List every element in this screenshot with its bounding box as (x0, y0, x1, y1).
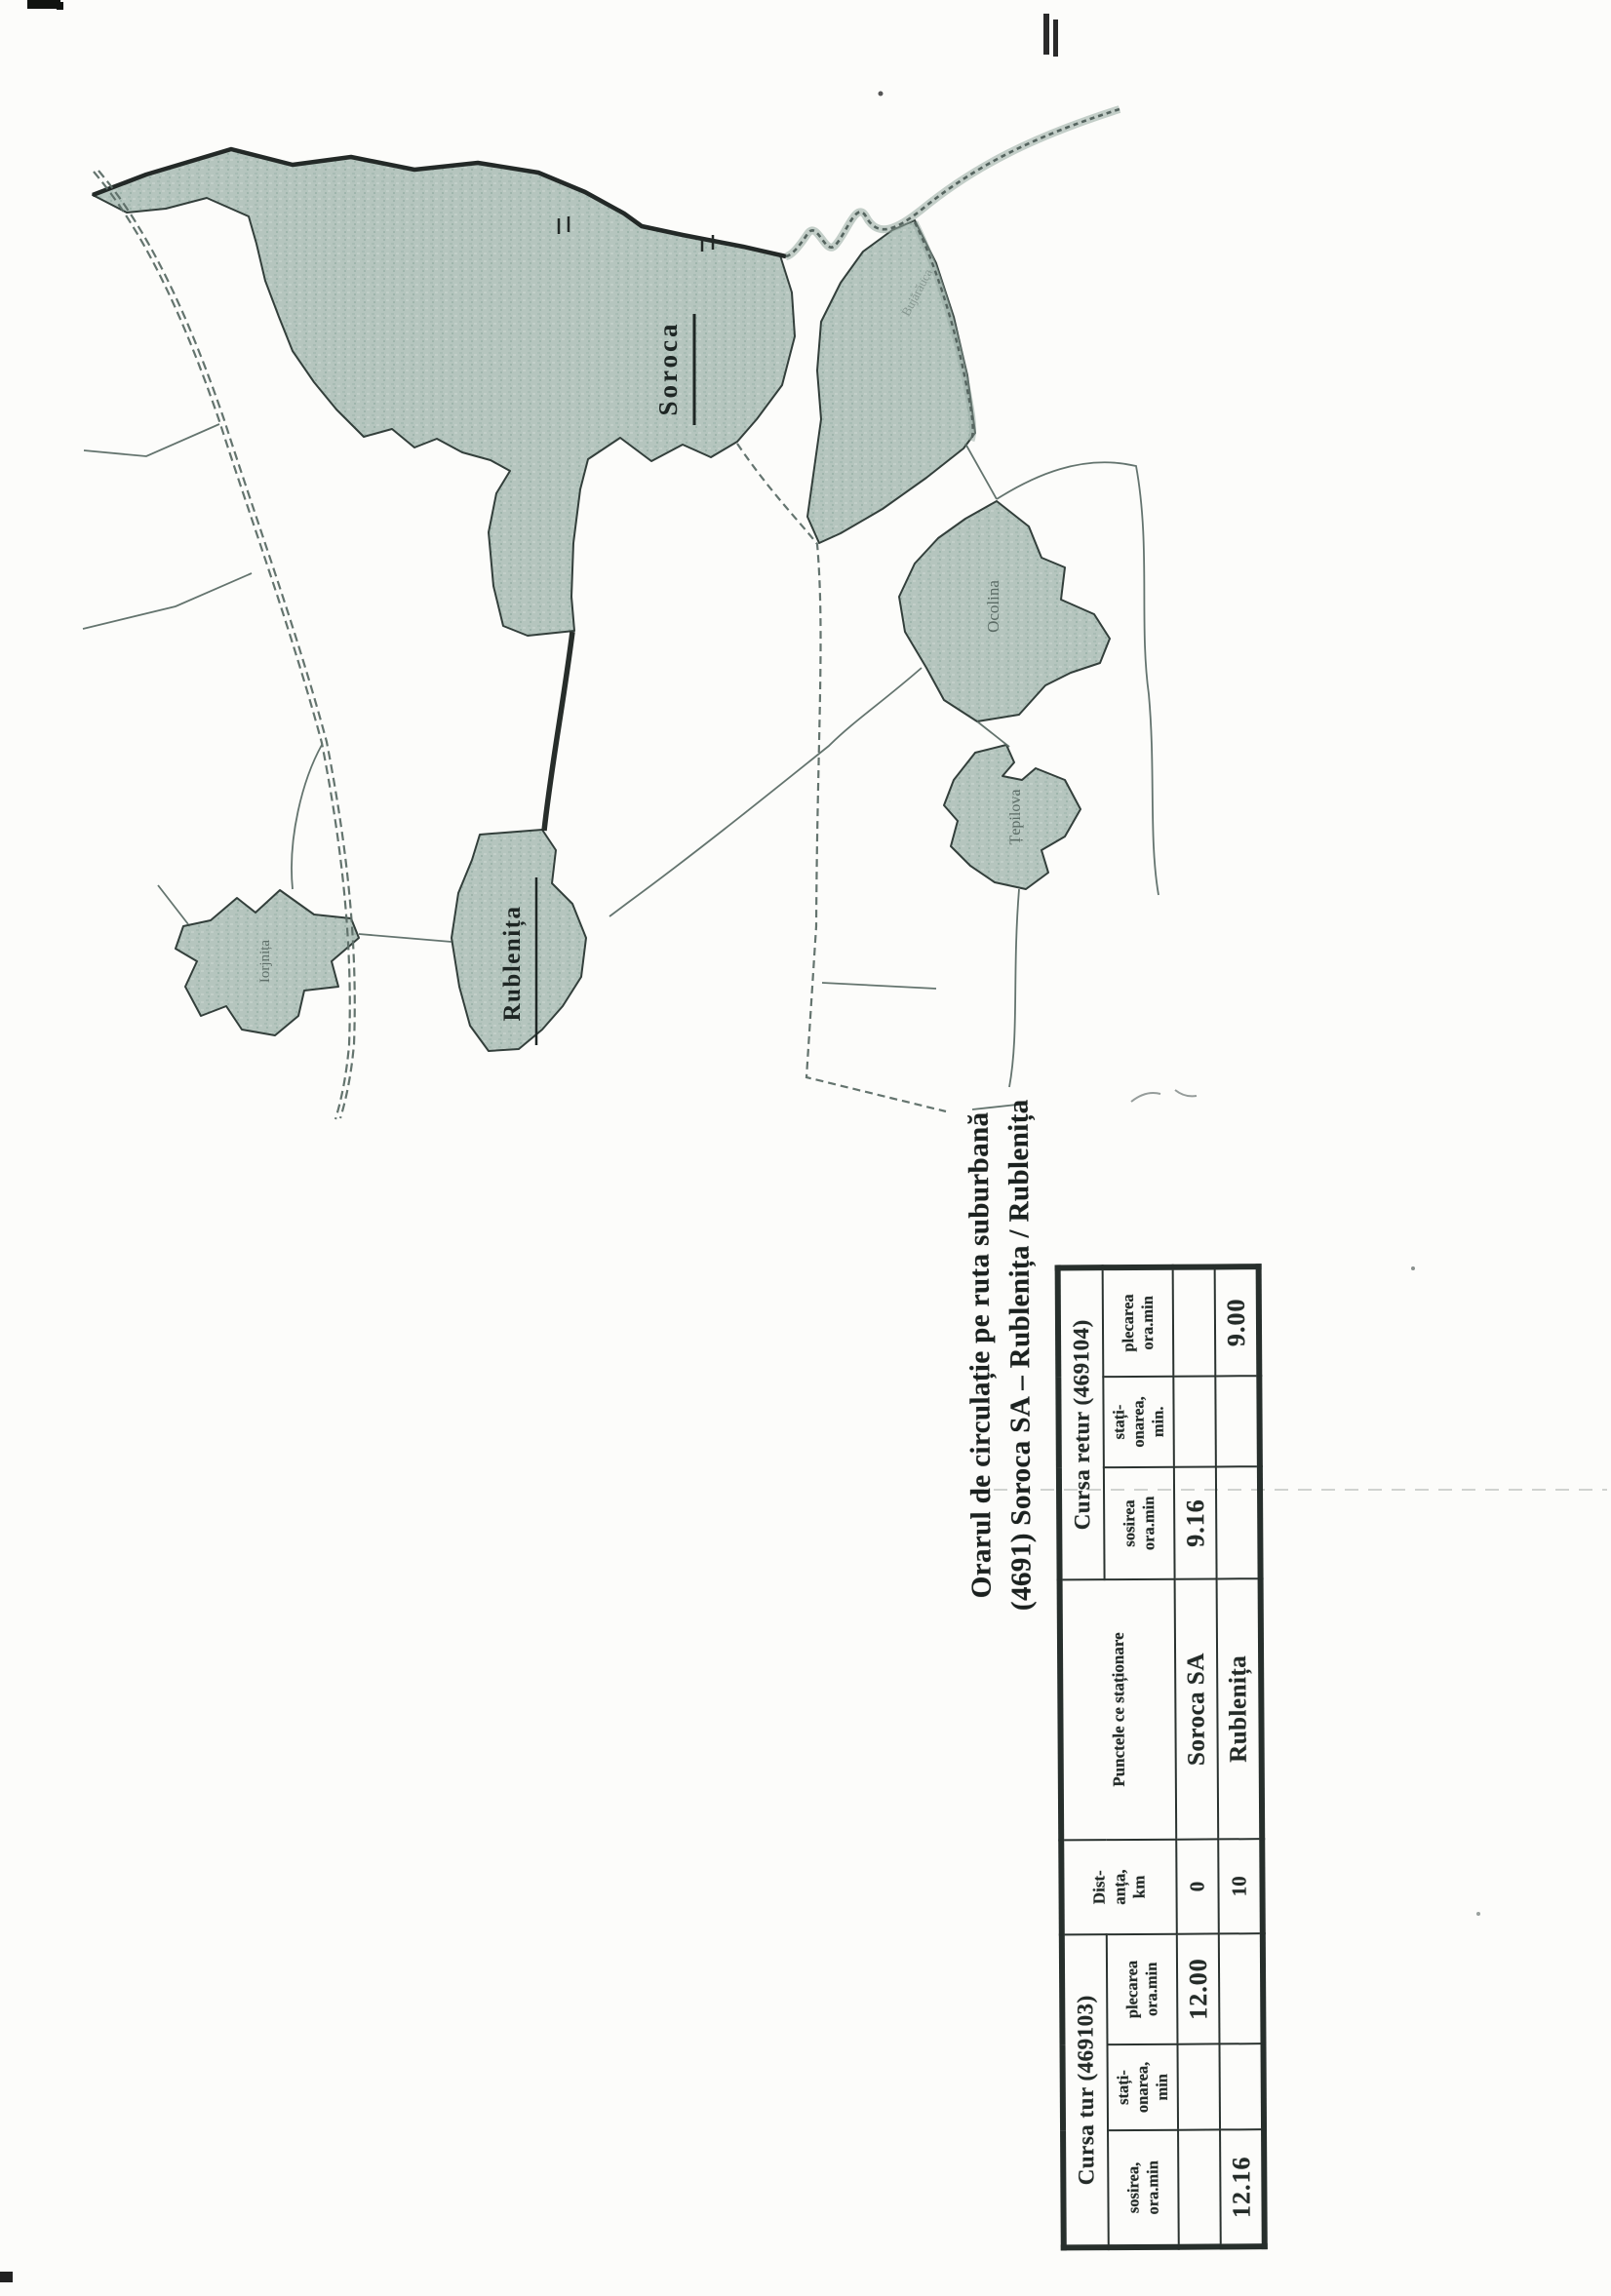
road (965, 444, 997, 499)
route-map: Soroca Rublenița Ocolina Țepilova Iorjni… (0, 0, 1611, 2296)
iorjnita-label: Iorjnița (257, 940, 273, 983)
cell-point: Rublenița (1217, 1578, 1263, 1839)
rublenita-label: Rublenița (499, 905, 527, 1021)
group-header-retur: Cursa retur (469104) (1058, 1267, 1105, 1579)
cell-tur-departure: 12.00 (1177, 1933, 1220, 2043)
tur-arrival-header: sosirea, ora.min (1108, 2130, 1179, 2247)
road (84, 424, 219, 456)
ocolina-label: Ocolina (984, 580, 1002, 633)
group-header-row: Cursa tur (469103) Dist- anța, km Puncte… (1058, 1267, 1109, 2247)
title-line-1: Orarul de circulație pe ruta suburbană (959, 1073, 1002, 1637)
route-line (544, 632, 572, 831)
region-bujarauca (807, 220, 975, 543)
distance-column-header: Dist- anța, km (1061, 1840, 1177, 1935)
title-line-2: (4691) Soroca SA – Rublenița / Rublenița (999, 1073, 1042, 1637)
points-column-header: Punctele ce staționare (1060, 1579, 1177, 1841)
road (609, 668, 922, 916)
cell-point: Soroca SA (1175, 1578, 1219, 1839)
cell-retur-stop (1173, 1376, 1216, 1466)
cell-distance: 10 (1218, 1839, 1263, 1933)
road (977, 721, 1009, 747)
retur-arrival-header: sosirea ora.min (1104, 1467, 1175, 1579)
table-row-soroca: 12.00 0 Soroca SA 9.16 (1173, 1266, 1221, 2246)
tur-departure-header: plecarea ora.min (1107, 1934, 1178, 2044)
road (359, 934, 452, 942)
cell-tur-arrival: 12.16 (1220, 2129, 1265, 2246)
road (158, 885, 188, 924)
road (822, 983, 936, 989)
timetable-sheet: Orarul de circulație pe ruta suburbană (… (959, 1040, 1298, 2251)
cell-retur-departure: 9.00 (1215, 1266, 1260, 1376)
tepilova-label: Țepilova (1007, 790, 1024, 845)
cell-tur-arrival (1178, 2129, 1221, 2246)
road-east-double (737, 444, 946, 1111)
table-row-rublenita: 12.16 10 Rublenița 9.00 (1215, 1266, 1265, 2246)
cell-tur-departure (1219, 1933, 1264, 2043)
region-soroca (93, 149, 795, 636)
retur-departure-header: plecarea ora.min (1103, 1267, 1174, 1377)
region-ocolina (899, 501, 1110, 721)
cell-retur-arrival: 9.16 (1174, 1466, 1217, 1578)
cell-retur-arrival (1216, 1466, 1261, 1578)
group-header-tur: Cursa tur (469103) (1062, 1934, 1109, 2247)
cell-retur-departure (1173, 1266, 1216, 1376)
cell-tur-stop (1177, 2043, 1220, 2129)
document-title: Orarul de circulație pe ruta suburbană (… (959, 1073, 1042, 1637)
road (83, 573, 252, 629)
cell-retur-stop (1215, 1376, 1260, 1466)
tur-stop-header: stați- onarea, min (1107, 2044, 1178, 2130)
road (292, 745, 322, 889)
soroca-label: Soroca (653, 322, 683, 416)
retur-stop-header: stați- onarea, min. (1103, 1377, 1174, 1467)
cell-distance: 0 (1176, 1839, 1219, 1933)
cell-tur-stop (1219, 2043, 1264, 2129)
schedule-table: Cursa tur (469103) Dist- anța, km Puncte… (1055, 1264, 1268, 2250)
scanned-page: { "page": { "title_line1": "Orarul de ci… (0, 0, 1611, 2296)
scan-artifacts (0, 0, 1607, 2282)
